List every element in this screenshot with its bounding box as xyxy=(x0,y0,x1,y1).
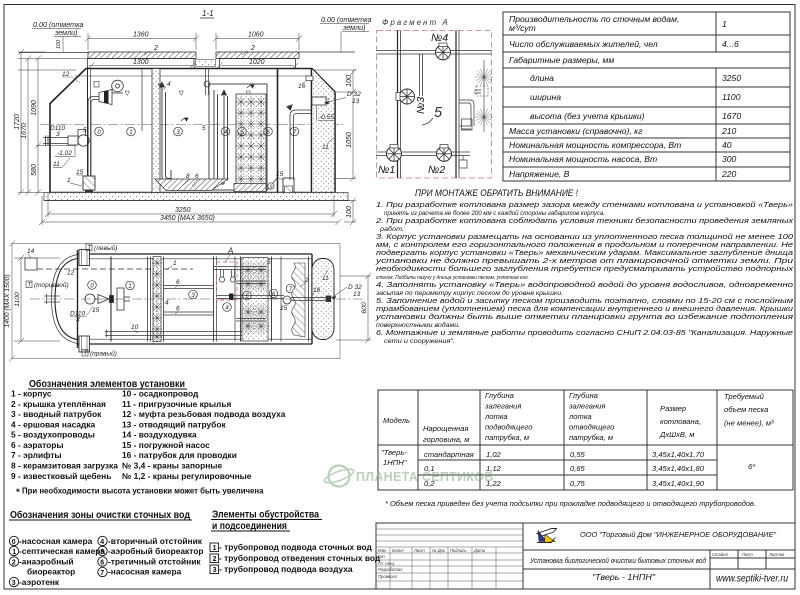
svg-text:(торцевой): (торцевой) xyxy=(34,281,69,289)
svg-text:ширина: ширина xyxy=(530,92,561,102)
svg-text:1090: 1090 xyxy=(31,100,38,116)
svg-text:1: 1 xyxy=(128,284,131,290)
svg-text:10 - осадкопровод: 10 - осадкопровод xyxy=(122,389,199,399)
svg-text:1 - корпус: 1 - корпус xyxy=(11,389,52,399)
svg-text:*: * xyxy=(16,487,20,498)
svg-text:16 - патрубок для проводки: 16 - патрубок для проводки xyxy=(122,450,237,460)
svg-text:3 - вводный патрубок: 3 - вводный патрубок xyxy=(11,409,102,419)
svg-text:работ.: работ. xyxy=(379,226,404,233)
svg-text:Размер: Размер xyxy=(660,404,686,413)
svg-text:3: 3 xyxy=(12,580,16,587)
svg-text:котлована,: котлована, xyxy=(660,417,701,426)
svg-text:Колич: Колич xyxy=(392,548,404,553)
svg-text:10: 10 xyxy=(131,324,139,331)
svg-text:ПЛАНЕТА СЕПТИКОВ: ПЛАНЕТА СЕПТИКОВ xyxy=(356,470,494,484)
svg-text:D 32: D 32 xyxy=(348,284,362,291)
svg-text:13 - отводящий патрубок: 13 - отводящий патрубок xyxy=(122,419,226,429)
svg-text:№1: №1 xyxy=(378,164,395,176)
svg-text:5. Заполнение водой и засыпку: 5. Заполнение водой и засыпку песком про… xyxy=(376,297,793,305)
svg-text:-аэробный биореактор: -аэробный биореактор xyxy=(108,546,203,556)
svg-text:220: 220 xyxy=(721,169,737,179)
svg-text:Обозначения зоны очистки сточн: Обозначения зоны очистки сточных вод xyxy=(10,509,190,521)
svg-text:Глубина: Глубина xyxy=(485,391,514,400)
svg-text:3: 3 xyxy=(56,131,60,138)
svg-text:1400 (MAX 1500): 1400 (MAX 1500) xyxy=(4,274,11,327)
svg-text:1670: 1670 xyxy=(722,111,741,121)
svg-text:1-1: 1-1 xyxy=(202,9,214,18)
svg-text:2: 2 xyxy=(213,556,217,563)
svg-text:3: 3 xyxy=(76,317,80,324)
svg-text:* Объем песка приведен без уч: * Объем песка приведен без учета подсыпк… xyxy=(385,499,756,508)
svg-text:Лист: Лист xyxy=(741,552,753,557)
svg-text:100: 100 xyxy=(346,75,353,87)
svg-text:отводящего: отводящего xyxy=(569,423,614,432)
svg-text:5: 5 xyxy=(267,259,271,266)
svg-text:6: 6 xyxy=(195,173,199,180)
svg-text:9: 9 xyxy=(269,184,272,190)
svg-text:залегания: залегания xyxy=(568,402,605,411)
svg-text:7 - эрлифты: 7 - эрлифты xyxy=(11,450,62,460)
svg-text:3: 3 xyxy=(213,567,217,574)
svg-text:патрубка, м: патрубка, м xyxy=(485,433,530,442)
svg-text:4: 4 xyxy=(100,539,104,546)
svg-text:3250: 3250 xyxy=(722,73,741,83)
svg-text:Глубина: Глубина xyxy=(569,391,598,400)
svg-text:стандартная: стандартная xyxy=(424,450,474,459)
svg-text:1: 1 xyxy=(129,130,132,136)
svg-text:2. При разработке котлована со: 2. При разработке котлована соблюдать ус… xyxy=(375,217,794,225)
svg-text:лотка: лотка xyxy=(484,412,508,421)
svg-text:5: 5 xyxy=(100,549,104,556)
svg-text:№ 1,2 - краны регулировочные: № 1,2 - краны регулировочные xyxy=(122,471,252,481)
svg-text:0,75: 0,75 xyxy=(570,479,586,488)
svg-text:1: 1 xyxy=(722,19,727,29)
svg-text:1: 1 xyxy=(12,549,16,556)
svg-text:6. Монтажные и земляные работы: 6. Монтажные и земляные работы проводить… xyxy=(376,329,793,337)
svg-text:№ 3,4 - краны запорные: № 3,4 - краны запорные xyxy=(122,461,222,471)
svg-text:1670: 1670 xyxy=(21,123,28,139)
svg-text:4: 4 xyxy=(167,81,171,88)
svg-text:12 - муфта резьбовая подвода в: 12 - муфта резьбовая подвода воздуха xyxy=(122,409,286,419)
svg-text:подводящего: подводящего xyxy=(485,423,532,432)
svg-text:установки не должно превышать: установки не должно превышать 2-х метров… xyxy=(375,257,794,265)
svg-text:16: 16 xyxy=(298,83,306,90)
svg-text:15 - погружной насос: 15 - погружной насос xyxy=(122,440,210,450)
svg-text:Листов: Листов xyxy=(768,552,785,557)
svg-text:15: 15 xyxy=(280,305,288,312)
svg-text:Масса установки (справочно), к: Масса установки (справочно), кг xyxy=(509,126,643,136)
svg-text:Требуемый: Требуемый xyxy=(724,392,765,401)
svg-text:11 - пригрузочные крылья: 11 - пригрузочные крылья xyxy=(122,399,232,409)
svg-text:Номинальная мощность насоса, В: Номинальная мощность насоса, Вт xyxy=(509,154,657,164)
svg-text:580: 580 xyxy=(31,164,38,176)
svg-text:- трубопровод подвода воздуха: - трубопровод подвода воздуха xyxy=(219,564,353,574)
svg-text:Гл. спец.: Гл. спец. xyxy=(378,561,395,566)
svg-text:4...6: 4...6 xyxy=(722,39,739,49)
svg-text:1. При разработке котлована ра: 1. При разработке котлована размер зазор… xyxy=(376,201,793,209)
svg-text:сети и сооружения".: сети и сооружения". xyxy=(384,338,455,345)
svg-text:-насосная камера: -насосная камера xyxy=(19,536,93,546)
svg-text:1100: 1100 xyxy=(14,292,21,307)
svg-text:2: 2 xyxy=(250,45,255,52)
svg-text:(правый): (правый) xyxy=(90,350,117,358)
svg-text:1020: 1020 xyxy=(249,59,265,66)
svg-text:5: 5 xyxy=(434,105,443,121)
svg-text:1060: 1060 xyxy=(248,32,264,39)
svg-text:9 - известковый щебень: 9 - известковый щебень xyxy=(11,471,111,481)
svg-text:"Тверь-: "Тверь- xyxy=(381,448,407,457)
svg-text:объем песка: объем песка xyxy=(724,405,768,414)
svg-text:патрубка, м: патрубка, м xyxy=(569,433,614,442)
svg-text:4 - ершовая насадка: 4 - ершовая насадка xyxy=(11,419,96,429)
svg-text:600: 600 xyxy=(361,302,368,314)
svg-text:-0.55: -0.55 xyxy=(319,114,334,121)
svg-text:Разработал: Разработал xyxy=(378,567,403,572)
svg-text:горловина, м: горловина, м xyxy=(423,435,470,444)
svg-text:Нарощенная: Нарощенная xyxy=(423,424,468,433)
svg-text:5 - воздухопроводы: 5 - воздухопроводы xyxy=(11,430,95,440)
svg-text:Элементы обустройства: Элементы обустройства xyxy=(212,509,319,521)
svg-text:-анаэробный: -анаэробный xyxy=(19,557,74,567)
svg-text:5: 5 xyxy=(83,127,87,134)
svg-text:1720: 1720 xyxy=(14,114,21,130)
svg-text:15: 15 xyxy=(92,307,100,314)
svg-text:1300: 1300 xyxy=(133,59,149,66)
svg-text:(левый): (левый) xyxy=(94,244,117,252)
svg-text:Число обслуживаемых жителей, ч: Число обслуживаемых жителей, чел xyxy=(509,39,658,49)
svg-text:Модель: Модель xyxy=(383,416,410,425)
svg-text:2: 2 xyxy=(153,45,158,52)
svg-text:1НПН": 1НПН" xyxy=(383,458,407,467)
svg-text:-септическая камера: -септическая камера xyxy=(19,546,105,556)
svg-text:биореактор: биореактор xyxy=(27,567,75,577)
svg-text:1050: 1050 xyxy=(346,132,353,148)
svg-text:0,55: 0,55 xyxy=(570,450,586,459)
svg-text:-третичный отстойник: -третичный отстойник xyxy=(108,557,201,567)
svg-text:0: 0 xyxy=(12,539,16,546)
svg-text:0,65: 0,65 xyxy=(570,464,586,473)
svg-text:2 - крышка утеплённая: 2 - крышка утеплённая xyxy=(11,399,106,409)
svg-text:3,45х1,40х1,90: 3,45х1,40х1,90 xyxy=(652,479,705,488)
svg-text:1100: 1100 xyxy=(722,92,741,102)
svg-text:установки должны быть выше отм: установки должны быть выше отметки плани… xyxy=(375,313,794,321)
svg-text:№2: №2 xyxy=(428,164,445,176)
svg-text:Стадия: Стадия xyxy=(712,552,728,557)
svg-text:1360: 1360 xyxy=(133,32,149,39)
svg-text:ПРИ МОНТАЖЕ ОБРАТИТЬ ВНИМАНИЕ: ПРИ МОНТАЖЕ ОБРАТИТЬ ВНИМАНИЕ ! xyxy=(415,188,578,198)
svg-text:засыпая по периметру корпус пе: засыпая по периметру корпус песком до ур… xyxy=(375,290,563,297)
svg-text:При необходимости высота устан: При необходимости высота установки может… xyxy=(22,487,264,496)
svg-text:6: 6 xyxy=(176,306,180,313)
svg-text:длина: длина xyxy=(530,73,554,83)
svg-text:3. Корпус установки размещать: 3. Корпус установки размещать на основан… xyxy=(376,233,793,241)
svg-text:Фрагмент А: Фрагмент А xyxy=(382,18,450,27)
svg-text:6 - аэраторы: 6 - аэраторы xyxy=(11,440,64,450)
svg-text:100: 100 xyxy=(346,206,353,218)
svg-text:мм, с контролем его горизонтал: мм, с контролем его горизонтального поло… xyxy=(376,241,793,249)
svg-text:А: А xyxy=(227,247,233,256)
svg-text:6: 6 xyxy=(100,560,104,567)
svg-text:Подпись: Подпись xyxy=(450,548,467,553)
svg-text:14 - воздуходувка: 14 - воздуходувка xyxy=(122,430,197,440)
svg-text:3450 (MAX 3650): 3450 (MAX 3650) xyxy=(160,215,215,222)
svg-text:(не менее), м³: (не менее), м³ xyxy=(724,419,774,428)
svg-text:и подсоединения: и подсоединения xyxy=(212,520,287,532)
svg-text:210: 210 xyxy=(721,126,737,136)
svg-text:www.septiki-tver.ru: www.septiki-tver.ru xyxy=(716,574,788,585)
svg-text:16: 16 xyxy=(313,287,321,294)
svg-text:7: 7 xyxy=(100,570,104,577)
svg-text:залегания: залегания xyxy=(484,402,521,411)
svg-text:11: 11 xyxy=(53,161,60,168)
svg-text:№3: №3 xyxy=(415,97,427,114)
svg-text:2: 2 xyxy=(12,560,16,567)
svg-text:Напряжение, В: Напряжение, В xyxy=(509,169,570,179)
svg-text:ДхШхВ, м: ДхШхВ, м xyxy=(659,430,695,439)
svg-text:13: 13 xyxy=(353,291,361,298)
svg-text:3,45х1,40х1,70: 3,45х1,40х1,70 xyxy=(652,450,705,459)
svg-text:-вторичный отстойник: -вторичный отстойник xyxy=(108,536,203,546)
svg-text:поверхностными водами.: поверхностными водами. xyxy=(376,322,460,329)
svg-text:м³/сут: м³/сут xyxy=(509,23,536,33)
svg-text:300: 300 xyxy=(722,154,737,164)
svg-text:3,45х1,40х1,80: 3,45х1,40х1,80 xyxy=(652,464,705,473)
svg-text:-насосная камера: -насосная камера xyxy=(108,567,182,577)
svg-text:Номинальная мощность компрессо: Номинальная мощность компрессора, Вт xyxy=(509,140,681,150)
svg-text:11: 11 xyxy=(322,144,329,151)
svg-text:6*: 6* xyxy=(748,462,756,471)
svg-text:необходимости большего заглубл: необходимости большего заглубления требу… xyxy=(376,265,794,273)
svg-text:4: 4 xyxy=(165,300,169,307)
svg-text:земли): земли) xyxy=(342,23,366,32)
svg-text:3250: 3250 xyxy=(175,207,191,214)
svg-text:1,02: 1,02 xyxy=(486,450,502,459)
svg-text:-1.02: -1.02 xyxy=(57,150,72,157)
svg-text:№ Док: № Док xyxy=(432,548,446,553)
svg-text:Установка биологической очистк: Установка биологической очистки бытовых … xyxy=(529,557,706,565)
svg-text:Лист: Лист xyxy=(413,548,425,553)
svg-text:6: 6 xyxy=(176,279,180,286)
svg-text:8 - керамзитовая загрузка: 8 - керамзитовая загрузка xyxy=(11,461,118,471)
svg-text:№4: №4 xyxy=(431,32,448,44)
svg-text:100: 100 xyxy=(56,39,62,49)
svg-text:- трубопровод подвода сточных: - трубопровод подвода сточных вод xyxy=(219,542,373,552)
svg-text:8: 8 xyxy=(186,173,190,180)
svg-text:5: 5 xyxy=(202,125,206,132)
svg-text:40: 40 xyxy=(722,140,732,150)
svg-text:земли): земли) xyxy=(54,28,78,37)
svg-text:высота (без учета крышки): высота (без учета крышки) xyxy=(530,111,645,121)
svg-text:принять из расчета не более 20: принять из расчета не более 200 мм с каж… xyxy=(384,210,605,217)
svg-text:стенок. Подбить пазуху у днищ: стенок. Подбить пазуху у днища установки… xyxy=(376,275,529,281)
svg-text:Проверил: Проверил xyxy=(378,574,398,579)
svg-text:11: 11 xyxy=(322,275,329,282)
svg-text:Дата: Дата xyxy=(473,548,486,553)
svg-text:Габаритные размеры, мм: Габаритные размеры, мм xyxy=(509,55,614,65)
svg-text:1: 1 xyxy=(173,260,177,267)
svg-text:1: 1 xyxy=(213,545,217,552)
svg-text:- трубопровод отведения сточны: - трубопровод отведения сточных вод xyxy=(219,553,381,563)
svg-text:-аэротенк: -аэротенк xyxy=(19,577,60,587)
svg-text:лотка: лотка xyxy=(568,412,592,421)
svg-text:подвергать корпус установки «Т: подвергать корпус установки «Тверь» меха… xyxy=(376,249,793,257)
svg-text:"Тверь - 1НПН": "Тверь - 1НПН" xyxy=(592,572,656,582)
svg-text:ООО "Торговый Дом "ИНЖЕНЕРНОЕ: ООО "Торговый Дом "ИНЖЕНЕРНОЕ ОБОРУДОВАН… xyxy=(580,531,777,539)
svg-text:трамбованием (уплотнением) пес: трамбованием (уплотнением) песка для ком… xyxy=(376,305,793,313)
svg-text:12: 12 xyxy=(67,270,75,277)
svg-text:4. Заполнять установку «Тверь»: 4. Заполнять установку «Тверь» водопрово… xyxy=(376,281,793,289)
